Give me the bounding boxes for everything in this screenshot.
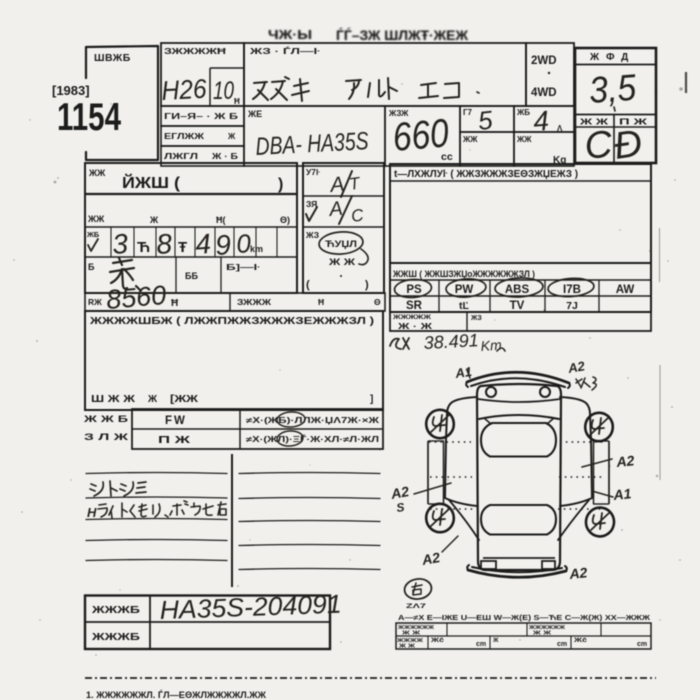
svg-text:Ж · Б: Ж · Б	[211, 152, 239, 161]
svg-text:ЖБ: ЖБ	[516, 108, 530, 117]
svg-text:Ħ(: Ħ(	[216, 215, 226, 225]
svg-text:km: km	[250, 244, 263, 254]
svg-text:FW: FW	[165, 415, 187, 427]
svg-text:Жč: Жč	[573, 638, 588, 644]
svg-text:38.491: 38.491	[423, 330, 479, 353]
svg-text:A—≠Х E—ІЖЕ U—ЕШ W—Ж(Е): A—≠Х E—ІЖЕ U—ЕШ W—Ж(Е) S—ЋЕ C—Ж(Ж) XX—ЖЖ…	[398, 615, 651, 622]
svg-text:Ж: Ж	[149, 215, 159, 225]
svg-text:cc: cc	[441, 151, 453, 163]
svg-text:Ж Ж: Ж Ж	[531, 631, 551, 637]
svg-text:HA35S-204091: HA35S-204091	[159, 589, 342, 625]
svg-text:8560: 8560	[105, 280, 167, 315]
svg-text:A2: A2	[389, 483, 411, 502]
svg-text:TV: TV	[510, 300, 525, 312]
svg-text:Ħ: Ħ	[171, 298, 179, 309]
svg-text:Б]—ŀ: Б]—ŀ	[226, 262, 260, 272]
svg-text:Θ: Θ	[374, 297, 381, 307]
svg-text:ЖЖЖБ: ЖЖЖБ	[91, 632, 140, 643]
svg-text:9: 9	[214, 229, 232, 261]
svg-text:≠Х·(ЖБ)·ЛЛЖ·ЏΛ7Ж·×Ж: ≠Х·(ЖБ)·ЛЛЖ·ЏΛ7Ж·×Ж	[246, 416, 380, 425]
svg-text:3: 3	[111, 228, 129, 260]
svg-text:ЖЕ: ЖЕ	[247, 109, 262, 119]
svg-text:ЖЖЖЖШБЖ ( ЛЖЖПЖЖЗЖЖЖЗЕЖЖЖЗЛ ): ЖЖЖЖШБЖ ( ЛЖЖПЖЖЗЖЖЖЗЕЖЖЖЗЛ )	[89, 315, 374, 327]
svg-text:Ж: Ж	[227, 132, 236, 141]
svg-text:A2: A2	[566, 358, 587, 376]
svg-text:Θ): Θ)	[280, 215, 290, 225]
svg-text:У7ŀ: У7ŀ	[306, 167, 320, 177]
svg-text:ЖБ: ЖБ	[86, 230, 100, 239]
svg-text:ЖЖ: ЖЖ	[462, 135, 478, 144]
svg-text:Ж Ж: Ж Ж	[398, 644, 416, 650]
svg-text:A2: A2	[568, 564, 589, 582]
svg-text:cm: cm	[557, 641, 567, 648]
svg-text:PW: PW	[455, 284, 474, 296]
svg-text:ABS: ABS	[505, 284, 530, 296]
svg-text:ЗЖЖЖЖĦ: ЗЖЖЖЖĦ	[164, 46, 227, 56]
svg-text:4: 4	[194, 228, 212, 260]
svg-text:≠Х·(ЖЛ)·ΞЃ·Ж·ХЛ·≠Л·ЖЛ: ≠Х·(ЖЛ)·ΞЃ·Ж·ХЛ·≠Л·ЖЛ	[246, 435, 380, 444]
svg-text:ЖЖ: ЖЖ	[88, 168, 106, 178]
svg-text:ЖЗ: ЖЗ	[305, 230, 319, 240]
svg-text:A2: A2	[420, 549, 442, 568]
svg-text:H26: H26	[161, 74, 208, 106]
svg-text:cm: cm	[637, 641, 647, 648]
svg-text:AW: AW	[616, 284, 635, 296]
svg-text:H: H	[87, 505, 97, 520]
svg-text:Ж · Ж: Ж · Ж	[396, 322, 433, 331]
svg-text:Ж Ж Б: Ж Ж Б	[82, 414, 128, 425]
svg-text:ЗЯ: ЗЯ	[306, 199, 317, 209]
svg-text:SR: SR	[406, 300, 423, 312]
svg-text:ЖЗ: ЖЗ	[470, 315, 482, 322]
svg-text:PS: PS	[406, 284, 422, 296]
svg-text:ГИ–Я– · Ж Б: ГИ–Я– · Ж Б	[164, 112, 238, 121]
svg-text:ШВЖБ: ШВЖБ	[94, 52, 131, 64]
svg-text:ЙЖШ (: ЙЖШ (	[122, 173, 181, 192]
svg-text:ЖФД: ЖФД	[589, 52, 635, 63]
svg-text:]: ]	[370, 394, 373, 405]
svg-text:ЖЖЖБ: ЖЖЖБ	[91, 605, 140, 616]
svg-text:Ж: Ж	[147, 394, 158, 405]
svg-text:Ħ: Ħ	[318, 297, 325, 307]
svg-text:1154: 1154	[57, 96, 121, 139]
svg-text:ZΛ7: ZΛ7	[406, 604, 427, 610]
svg-text:ЗЖЖЖ: ЗЖЖЖ	[237, 297, 271, 307]
svg-text:ЖЗ · ЃЛ—ŀ: ЖЗ · ЃЛ—ŀ	[248, 46, 320, 56]
svg-text:Ħ: Ħ	[234, 97, 240, 106]
svg-text:4WD: 4WD	[531, 87, 557, 99]
svg-text:RЖ: RЖ	[88, 297, 102, 307]
svg-text:t—ЛХЖЛУŀ ( ЖЖЗЖЖЖЗЕΘЗЖЏЕЖЗ ): t—ЛХЖЛУŀ ( ЖЖЗЖЖЖЗЕΘЗЖЏЕЖЗ )	[394, 169, 578, 180]
svg-text:Ћ: Ћ	[137, 239, 150, 256]
svg-text:Жč: Жč	[430, 638, 445, 644]
svg-text:Ш Ж Ж: Ш Ж Ж	[91, 394, 136, 405]
svg-text:З Л Ж: З Л Ж	[84, 432, 129, 443]
svg-text:П Ж: П Ж	[158, 435, 192, 446]
svg-text:I7B: I7B	[563, 284, 581, 296]
svg-text:A2: A2	[615, 452, 636, 470]
svg-text:Г7: Г7	[463, 108, 473, 117]
svg-text:ЃЃ–ЗЖ ШЛЖŦ·ЖЕЖ: ЃЃ–ЗЖ ШЛЖŦ·ЖЕЖ	[336, 28, 469, 43]
svg-text:Ж Ж: Ж Ж	[328, 257, 357, 267]
svg-text:ЛЖГЛ: ЛЖГЛ	[164, 152, 199, 161]
svg-text:(: (	[306, 279, 310, 291]
svg-text:ЋУЏЛ: ЋУЏЛ	[325, 239, 357, 249]
svg-text:DBA- HA35S: DBA- HA35S	[255, 127, 370, 161]
svg-text:Đ: Đ	[611, 123, 644, 168]
svg-text:ЖЖ: ЖЖ	[516, 135, 532, 144]
svg-text:ЖЖЖЖЖ: ЖЖЖЖЖ	[392, 314, 431, 321]
svg-text:Ж: Ж	[492, 638, 499, 644]
svg-text:10: 10	[213, 77, 234, 105]
svg-text:Ŧ: Ŧ	[178, 239, 187, 256]
svg-text:C: C	[583, 123, 615, 168]
svg-text:7J: 7J	[566, 300, 578, 312]
svg-text:Ж Ж: Ж Ж	[400, 631, 420, 637]
svg-text:ЖЖ: ЖЖ	[87, 214, 105, 224]
svg-text:3,5: 3,5	[588, 67, 638, 111]
svg-text:ЕГЛЖЖ: ЕГЛЖЖ	[164, 132, 205, 141]
svg-text:[ЖЖ: [ЖЖ	[170, 394, 199, 405]
svg-text:1. ЖЖЖЖЖЖЛ. ЃЛ—ЕΘЖЛЖЖЖЖЛ.ЖЖ: 1. ЖЖЖЖЖЖЛ. ЃЛ—ЕΘЖЛЖЖЖЖЛ.ЖЖ	[86, 690, 266, 700]
svg-text:A1: A1	[612, 485, 633, 503]
svg-text:Km: Km	[480, 337, 502, 354]
svg-text:): )	[278, 176, 283, 193]
svg-text:): )	[365, 279, 369, 291]
svg-text:tĽ: tĽ	[459, 300, 469, 312]
svg-text:ЧЖ·Ы: ЧЖ·Ы	[268, 27, 312, 42]
svg-text:2WD: 2WD	[531, 55, 557, 67]
svg-text:Б: Б	[88, 262, 95, 272]
svg-text:8: 8	[155, 228, 173, 260]
svg-text:ББ: ББ	[185, 271, 198, 281]
svg-text:cm: cm	[476, 641, 486, 648]
